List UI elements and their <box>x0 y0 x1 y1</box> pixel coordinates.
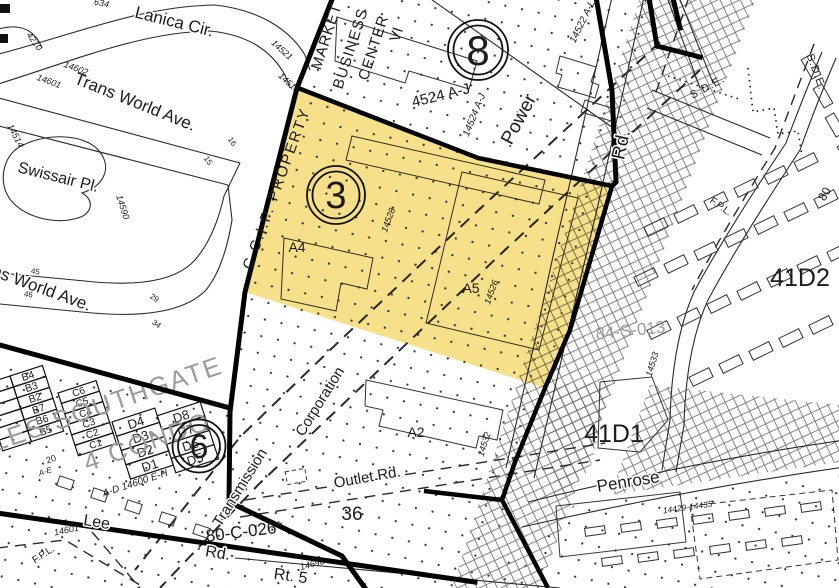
parcel-a2: A2 <box>407 424 424 440</box>
lot-45: 45 <box>30 266 41 276</box>
lot-46: 46 <box>23 289 34 299</box>
district-number-8: 8 <box>466 27 489 74</box>
zone-41d1-label: 41D1 <box>584 420 644 448</box>
zone-41d2-label: 41D2 <box>770 264 830 292</box>
plat-map[interactable]: B4B3B2B7B6B5 C6C5C4C3C2C1 D4D3D2D1D8D7D6… <box>0 0 839 588</box>
parcel-36: 36 <box>341 504 362 525</box>
district-number-6: 6 <box>190 428 209 466</box>
